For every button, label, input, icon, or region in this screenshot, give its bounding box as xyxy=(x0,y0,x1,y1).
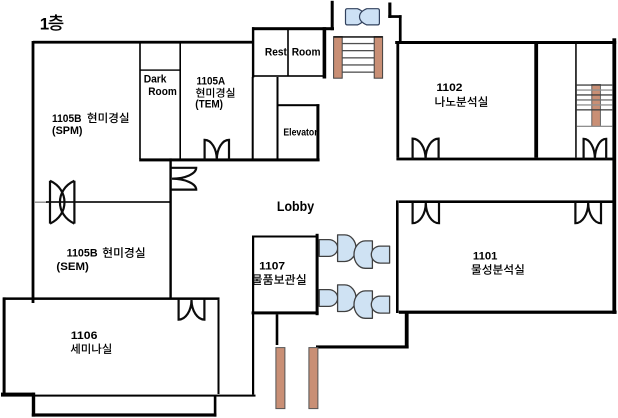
svg-text:Lobby: Lobby xyxy=(277,198,314,214)
svg-text:(SEM): (SEM) xyxy=(56,261,89,273)
svg-text:1105B: 1105B xyxy=(52,113,82,125)
svg-text:(TEM): (TEM) xyxy=(195,98,223,110)
svg-text:Dark: Dark xyxy=(144,73,168,85)
svg-text:1105B: 1105B xyxy=(67,247,98,259)
svg-text:1106: 1106 xyxy=(71,330,98,342)
svg-text:1105A: 1105A xyxy=(197,76,226,88)
svg-text:Room: Room xyxy=(292,46,321,58)
svg-text:Rest: Rest xyxy=(265,46,287,58)
svg-text:1: 1 xyxy=(40,14,49,33)
svg-text:1102: 1102 xyxy=(436,82,462,94)
svg-text:(SPM): (SPM) xyxy=(52,125,83,137)
svg-text:Elevator: Elevator xyxy=(283,128,317,139)
svg-text:Room: Room xyxy=(148,86,177,98)
svg-text:1107: 1107 xyxy=(259,260,285,272)
svg-text:1101: 1101 xyxy=(473,250,498,262)
